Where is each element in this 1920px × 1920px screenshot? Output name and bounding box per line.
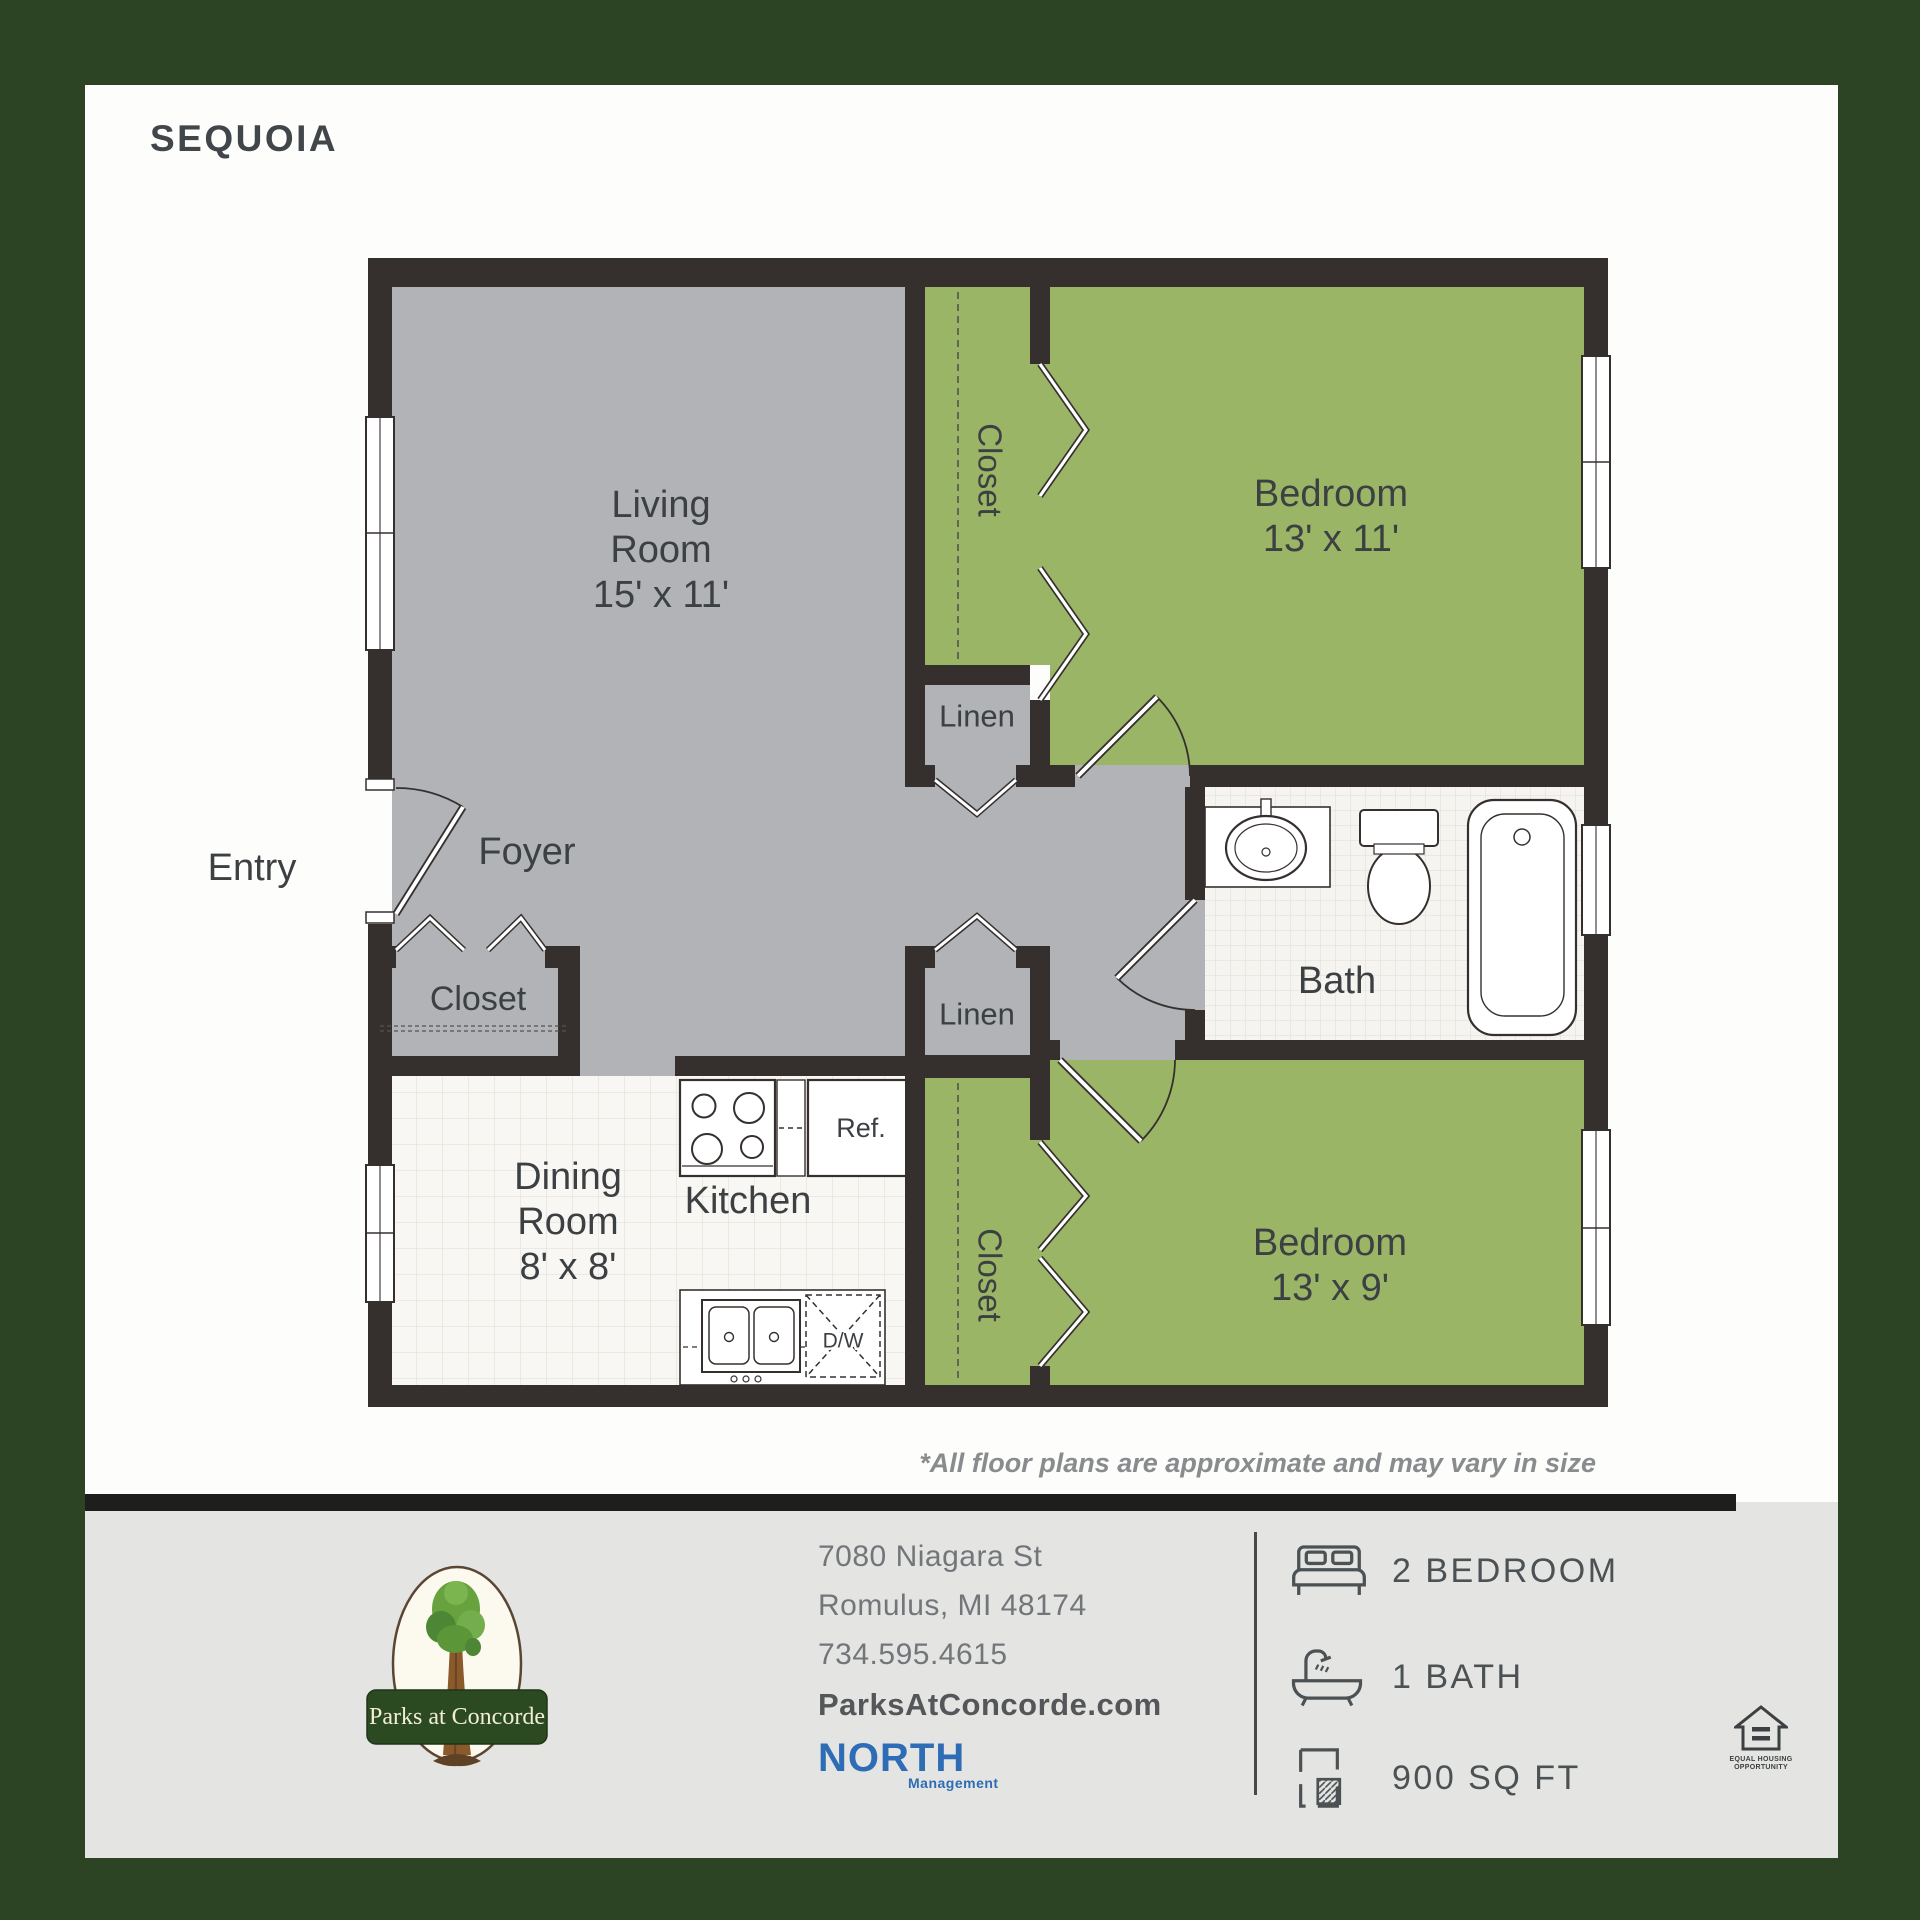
spec-row-bath: 1 BATH xyxy=(1288,1641,1628,1713)
wall-closet-bedroom2-stub xyxy=(1030,1366,1050,1385)
dining-room-label: Room xyxy=(517,1201,618,1243)
wall-closet-linen xyxy=(925,665,1030,685)
wall-bottom xyxy=(368,1385,1608,1407)
wall-right xyxy=(1584,1325,1608,1407)
wall-closet-bedroom2-stub xyxy=(1030,1078,1050,1140)
sqft-label: 900 SQ FT xyxy=(1392,1759,1581,1798)
wall-linen-stub xyxy=(1016,765,1050,787)
wall-kitchen-right xyxy=(905,1076,925,1385)
bedroom-count-label: 2 BEDROOM xyxy=(1392,1552,1619,1591)
eho-text-line1: EQUAL HOUSING xyxy=(1726,1756,1796,1764)
wall-linen2-bottom xyxy=(905,1055,1050,1078)
floorplan-icon xyxy=(1288,1745,1392,1811)
logo-name: Parks at Concorde xyxy=(369,1704,545,1730)
entry-label: Entry xyxy=(208,847,297,889)
linen-upper-label: Linen xyxy=(939,699,1015,734)
bed-icon xyxy=(1288,1542,1392,1600)
bath-count-label: 1 BATH xyxy=(1392,1658,1524,1697)
spec-row-bedrooms: 2 BEDROOM xyxy=(1288,1535,1628,1607)
stove xyxy=(680,1080,775,1176)
window-living xyxy=(366,417,394,650)
closet-bedroom2-label: Closet xyxy=(972,1228,1009,1322)
wall-left xyxy=(368,1302,392,1407)
wall-right xyxy=(1584,258,1608,356)
dishwasher-label: D/W xyxy=(823,1330,864,1353)
window-bedroom2 xyxy=(1582,1130,1610,1325)
wall-living-closet xyxy=(905,287,925,787)
bath-label: Bath xyxy=(1298,960,1376,1002)
wall-foyer-closet-bottom xyxy=(368,1056,580,1076)
bathtub xyxy=(1468,800,1576,1035)
management-name: NORTH xyxy=(818,1739,1162,1777)
disclaimer-text: *All floor plans are approximate and may… xyxy=(600,1448,1596,1479)
bedroom2-dims: 13' x 9' xyxy=(1271,1267,1389,1309)
phone-number: 734.595.4615 xyxy=(818,1630,1162,1679)
wall-foyer-closet-stub xyxy=(368,946,396,968)
wall-bedroom1-bottom xyxy=(1050,765,1075,787)
bedroom1-label: Bedroom xyxy=(1254,473,1408,515)
page-title: SEQUOIA xyxy=(150,118,338,160)
wall-left xyxy=(368,650,392,785)
equal-housing-logo: EQUAL HOUSING OPPORTUNITY xyxy=(1726,1705,1796,1772)
wall-linen2-stub xyxy=(1016,946,1050,968)
window-bath xyxy=(1582,825,1610,935)
kitchen-label: Kitchen xyxy=(685,1180,812,1222)
wall-bath-left xyxy=(1185,787,1205,900)
living-room-label: Room xyxy=(610,529,711,571)
foyer-label: Foyer xyxy=(478,831,575,873)
bathtub-icon xyxy=(1288,1646,1392,1708)
window-bedroom1 xyxy=(1582,356,1610,568)
closet-bedroom1-label: Closet xyxy=(972,423,1009,517)
address-line2: Romulus, MI 48174 xyxy=(818,1581,1162,1630)
dining-room-label: Dining xyxy=(514,1156,622,1198)
wall-bedroom2-top xyxy=(1050,1040,1060,1060)
spec-row-sqft: 900 SQ FT xyxy=(1288,1742,1628,1814)
contact-block: 7080 Niagara St Romulus, MI 48174 734.59… xyxy=(818,1532,1162,1791)
north-management-logo: NORTH Management xyxy=(818,1739,1162,1791)
footer-vertical-divider xyxy=(1254,1532,1257,1795)
foyer-closet-label: Closet xyxy=(430,980,527,1018)
linen-lower-label: Linen xyxy=(939,997,1015,1032)
double-sink xyxy=(702,1300,800,1382)
wall-linen-stub xyxy=(905,765,935,787)
wall-foyer-closet-stub xyxy=(545,946,580,968)
wall-left xyxy=(368,258,392,417)
wall-linen2-stub xyxy=(905,946,935,968)
wall-right xyxy=(1584,935,1608,1130)
wall-bedroom1-bottom xyxy=(1190,765,1584,787)
website-url: ParksAtConcorde.com xyxy=(818,1679,1162,1731)
foyer-passage-floor xyxy=(580,1056,675,1076)
eho-text-line2: OPPORTUNITY xyxy=(1726,1764,1796,1772)
refrigerator-label: Ref. xyxy=(836,1113,886,1143)
management-sub: Management xyxy=(908,1775,1162,1791)
wall-bedroom2-top xyxy=(1175,1040,1584,1060)
floor-plan: Living Room 15' x 11' Bedroom 13' x 11' … xyxy=(140,240,1640,1420)
living-room-label: Living xyxy=(611,484,710,526)
window-dining xyxy=(366,1165,394,1302)
sink-vanity xyxy=(1205,799,1330,887)
wall-kitchen-top xyxy=(675,1056,925,1076)
wall-top xyxy=(368,258,1608,287)
bedroom1-dims: 13' x 11' xyxy=(1263,518,1399,560)
parks-at-concorde-logo: Parks at Concorde xyxy=(363,1565,553,1780)
flyer-canvas: SEQUOIA xyxy=(0,0,1920,1920)
living-room-dims: 15' x 11' xyxy=(593,574,729,616)
dining-room-dims: 8' x 8' xyxy=(520,1246,617,1288)
address-line1: 7080 Niagara St xyxy=(818,1532,1162,1581)
wall-closet-bedroom1 xyxy=(1030,287,1050,364)
wall-right xyxy=(1584,568,1608,825)
footer-divider-bar xyxy=(85,1494,1736,1511)
bedroom2-label: Bedroom xyxy=(1253,1222,1407,1264)
